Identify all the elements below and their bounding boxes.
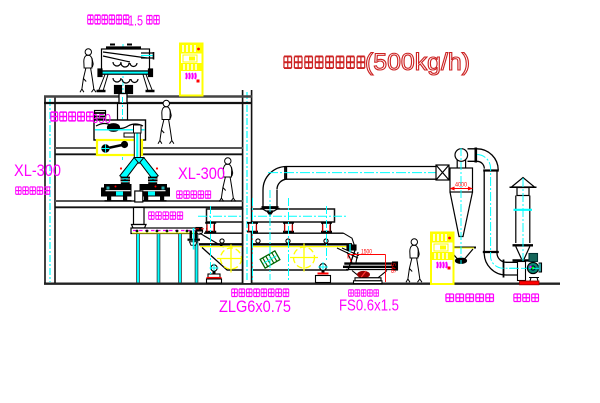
svg-text:FS0.6x1.5: FS0.6x1.5: [339, 298, 399, 315]
svg-text:XL-300: XL-300: [14, 162, 61, 180]
svg-text:350: 350: [92, 111, 111, 126]
svg-text:(500kg/h): (500kg/h): [365, 49, 470, 76]
svg-text:1.5: 1.5: [128, 14, 143, 30]
svg-text:XL-300: XL-300: [178, 165, 225, 183]
svg-text:ZLG6x0.75: ZLG6x0.75: [219, 298, 291, 316]
svg-text:1500: 1500: [361, 250, 373, 256]
svg-text:546: 546: [389, 263, 395, 274]
